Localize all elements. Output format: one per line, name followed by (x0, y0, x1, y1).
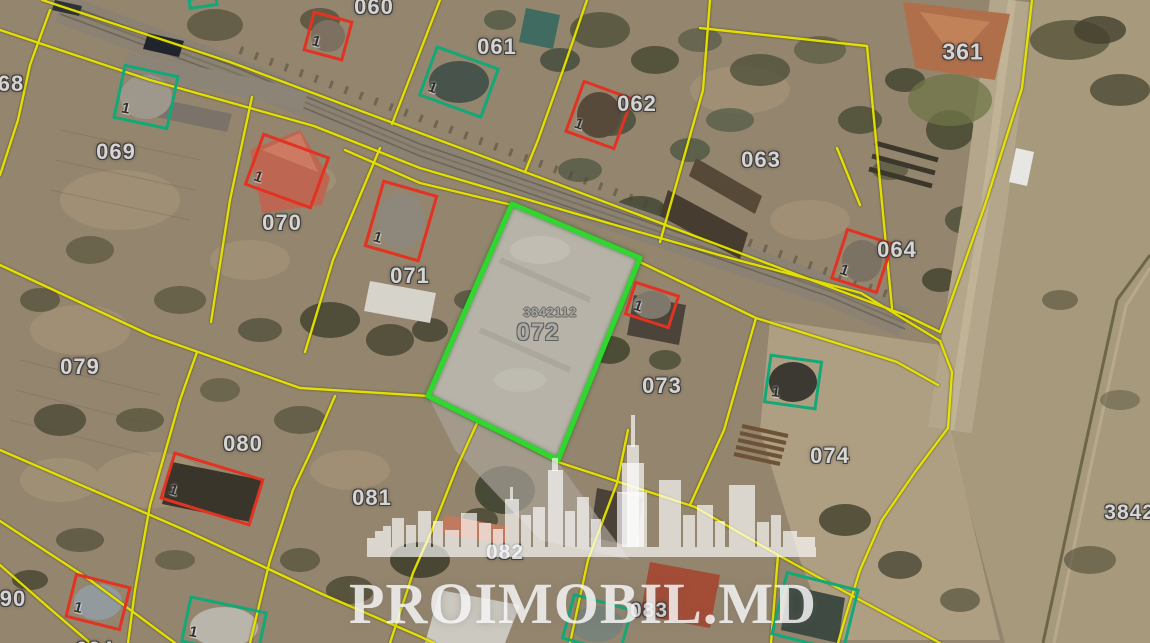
building-outline-green[interactable]: 1 (763, 353, 823, 410)
map-canvas[interactable]: 1111111111116806006106206336106406907007… (0, 0, 1150, 643)
parcel-label-070: 070 (262, 210, 302, 236)
building-number: 1 (770, 383, 781, 401)
parcel-label-080: 080 (223, 431, 263, 457)
building-outline-red[interactable]: 1 (64, 573, 131, 632)
building-outline-red[interactable]: 1 (302, 10, 353, 61)
building-outline-green[interactable] (770, 571, 860, 643)
parcel-label-90: 90 (0, 586, 26, 612)
parcel-label-071: 071 (390, 263, 430, 289)
building-outline-green[interactable] (561, 593, 633, 643)
parcel-label-060: 060 (354, 0, 394, 20)
building-number: 1 (310, 32, 322, 51)
map-overlay: 1111111111116806006106206336106406907007… (0, 0, 1150, 643)
parcel-label-3842112: 3842112 (523, 305, 576, 320)
building-number: 1 (572, 115, 586, 134)
building-number: 1 (72, 599, 84, 618)
building-outline-red[interactable]: 1 (363, 179, 438, 262)
building-outline-red[interactable]: 1 (244, 132, 331, 209)
building-number: 1 (252, 168, 266, 187)
parcel-label-073: 073 (642, 373, 682, 399)
building-number: 1 (371, 228, 384, 247)
parcel-label-083: 083 (630, 599, 668, 623)
building-outline-red[interactable]: 1 (159, 451, 264, 527)
parcel-label-072: 072 (516, 319, 559, 347)
building-number: 1 (167, 481, 180, 500)
parcel-label-061: 061 (477, 34, 517, 60)
parcel-label-38421: 38421 (1104, 501, 1150, 525)
building-number: 1 (838, 261, 851, 280)
parcel-label-361: 361 (942, 39, 983, 66)
building-outline-green[interactable] (187, 0, 218, 10)
building-number: 1 (632, 297, 645, 316)
parcel-label-063: 063 (741, 147, 781, 173)
building-number: 1 (188, 623, 200, 641)
parcel-label-074: 074 (810, 443, 850, 469)
building-outline-red[interactable]: 1 (624, 280, 681, 329)
building-number: 1 (426, 78, 440, 97)
building-outline-green[interactable]: 1 (112, 64, 179, 131)
parcel-label-081: 081 (352, 485, 392, 511)
parcel-label-062: 062 (617, 91, 657, 117)
building-number: 1 (120, 99, 132, 117)
building-outline-green[interactable]: 1 (180, 595, 268, 643)
parcel-label-082: 082 (486, 541, 524, 565)
parcel-label-079: 079 (60, 354, 100, 380)
parcel-label-094: 094 (76, 638, 114, 643)
parcel-label-064: 064 (877, 237, 917, 263)
parcel-label-069: 069 (96, 139, 136, 165)
parcel-label-68: 68 (0, 71, 24, 97)
